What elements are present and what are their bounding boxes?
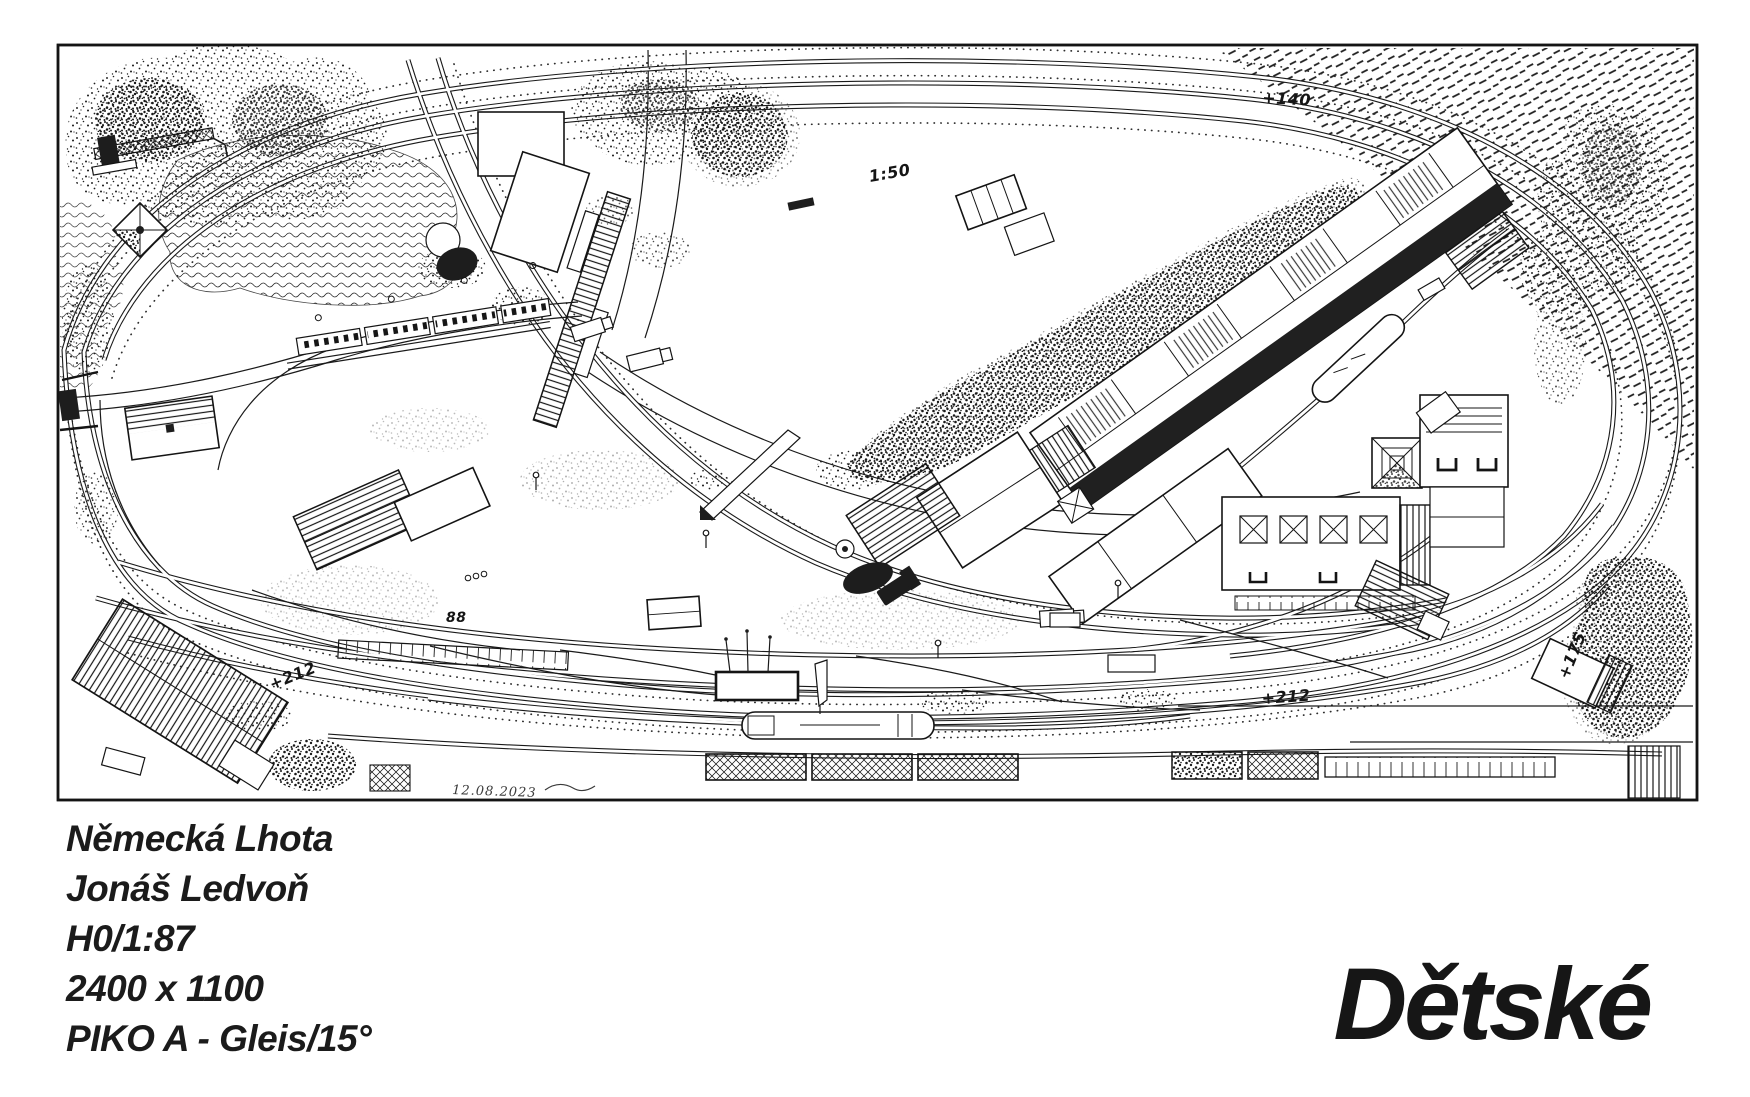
designer-name: Jonáš Ledvoň (66, 868, 309, 910)
brand-logo-text: Dětské (1150, 946, 1650, 1063)
house-left (125, 396, 219, 460)
building-number-label: 88 (446, 610, 466, 626)
railcar (742, 712, 934, 739)
scale-spec: H0/1:87 (66, 918, 194, 960)
track-system: PIKO A - Gleis/15° (66, 1018, 371, 1060)
freight-train (706, 754, 1018, 780)
garden-plot (370, 765, 410, 791)
layout-name: Německá Lhota (66, 818, 333, 860)
scanned-trackplan-page: +140 1:50 +212 +212 +175 88 12.08.2023 N… (0, 0, 1750, 1097)
elevation-label-right: +212 (1261, 686, 1311, 708)
elevation-label-top: +140 (1262, 88, 1312, 110)
layout-size: 2400 x 1100 (66, 968, 264, 1010)
track-plan-drawing: +140 1:50 +212 +212 +175 88 12.08.2023 (0, 0, 1750, 1097)
pyramid-roof-tower (1372, 438, 1422, 488)
retaining-wall (1628, 746, 1680, 798)
signature-date: 12.08.2023 (452, 783, 537, 801)
